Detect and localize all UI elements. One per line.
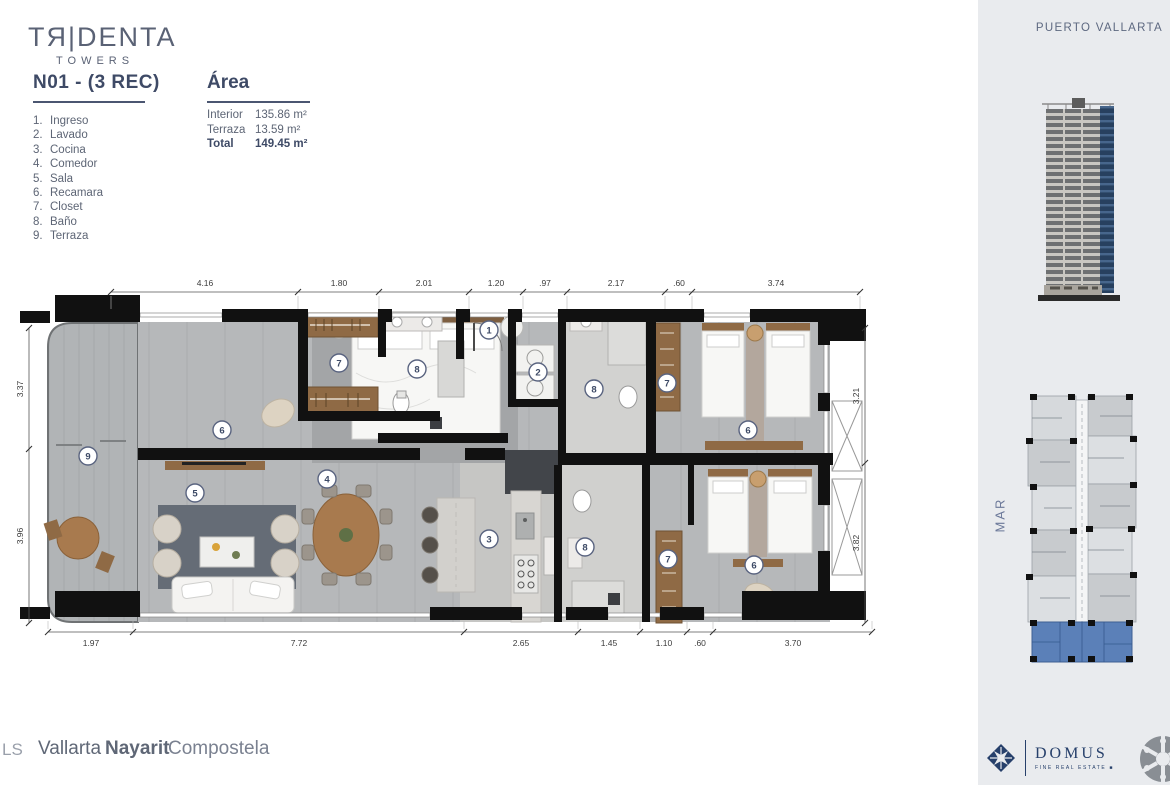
svg-text:.60: .60 bbox=[673, 278, 685, 288]
armchair bbox=[271, 549, 299, 577]
pillow bbox=[774, 481, 806, 493]
dresser bbox=[705, 441, 803, 450]
ground-line bbox=[1038, 295, 1120, 301]
runner-rug bbox=[749, 477, 767, 557]
svg-text:1.20: 1.20 bbox=[488, 278, 505, 288]
armchair bbox=[153, 549, 181, 577]
city-label: PUERTO VALLARTA bbox=[1036, 22, 1163, 34]
legend-item: 1.Ingreso bbox=[33, 114, 103, 128]
room-marker: 8 bbox=[408, 360, 426, 378]
armchair bbox=[271, 515, 299, 543]
tridenta-logo: TЯ|DENTA TOWERS bbox=[28, 22, 177, 67]
svg-text:1.97: 1.97 bbox=[83, 638, 100, 648]
svg-text:2.01: 2.01 bbox=[416, 278, 433, 288]
domus-name: DOMUS bbox=[1035, 745, 1114, 763]
svg-text:2: 2 bbox=[535, 368, 540, 379]
room-marker: 7 bbox=[659, 550, 677, 568]
roof-core bbox=[1072, 98, 1085, 108]
legend-item: 8.Baño bbox=[33, 215, 103, 229]
pillow bbox=[713, 481, 743, 493]
nightstand bbox=[747, 325, 763, 341]
room-marker: 9 bbox=[79, 447, 97, 465]
legend-item: 7.Closet bbox=[33, 200, 103, 214]
terrace-table bbox=[57, 517, 99, 559]
svg-text:7: 7 bbox=[665, 555, 670, 566]
area-row-total: Total149.45 m² bbox=[207, 137, 307, 152]
legend-item: 9.Terraza bbox=[33, 229, 103, 243]
centerpiece-plant bbox=[339, 528, 353, 542]
room-marker: 6 bbox=[739, 421, 757, 439]
area-panel-title: Área bbox=[207, 72, 249, 94]
logo-wordmark: TЯ|DENTA bbox=[28, 22, 177, 53]
room-marker: 7 bbox=[330, 354, 348, 372]
bed-headboard bbox=[708, 469, 748, 477]
svg-text:1.10: 1.10 bbox=[656, 638, 673, 648]
room-marker: 3 bbox=[480, 530, 498, 548]
svg-text:9: 9 bbox=[85, 452, 90, 463]
legend-item: 5.Sala bbox=[33, 172, 103, 186]
svg-text:7: 7 bbox=[336, 359, 341, 370]
unit-title-underline bbox=[33, 101, 145, 103]
keyplan bbox=[1020, 392, 1142, 669]
sink bbox=[392, 317, 402, 327]
partner-wheel-icon bbox=[1132, 733, 1170, 785]
footer-word: Vallarta bbox=[38, 738, 101, 760]
bed-headboard bbox=[702, 323, 744, 331]
right-sidebar: PUERTO VALLARTA bbox=[978, 0, 1170, 785]
area-title-underline bbox=[207, 101, 310, 103]
brochure-page: TЯ|DENTA TOWERS N01 - (3 REC) 1.Ingreso … bbox=[0, 0, 1170, 785]
toilet-tank bbox=[397, 391, 406, 398]
area-row-terraza: Terraza13.59 m² bbox=[207, 123, 307, 138]
svg-text:5: 5 bbox=[192, 489, 198, 500]
tv bbox=[182, 462, 246, 465]
pillow bbox=[707, 335, 739, 347]
svg-text:7.72: 7.72 bbox=[291, 638, 308, 648]
logo-towers-label: TOWERS bbox=[56, 55, 177, 67]
domus-tagline: FINE REAL ESTATE ■ bbox=[1035, 765, 1114, 771]
bar-stool bbox=[422, 537, 438, 553]
svg-text:3.70: 3.70 bbox=[785, 638, 802, 648]
legend-item: 4.Comedor bbox=[33, 157, 103, 171]
table-decor bbox=[212, 543, 220, 551]
domus-divider bbox=[1025, 740, 1026, 776]
room-marker: 8 bbox=[585, 380, 603, 398]
bar-stool bbox=[422, 507, 438, 523]
room-marker: 2 bbox=[529, 363, 547, 381]
svg-text:3.74: 3.74 bbox=[768, 278, 785, 288]
svg-text:6: 6 bbox=[751, 561, 756, 572]
armchair bbox=[153, 515, 181, 543]
svg-text:7: 7 bbox=[664, 379, 669, 390]
tower-elevation bbox=[1030, 92, 1126, 313]
room-marker: 7 bbox=[658, 374, 676, 392]
svg-text:1.80: 1.80 bbox=[331, 278, 348, 288]
toilet bbox=[573, 490, 591, 512]
svg-text:1: 1 bbox=[486, 326, 492, 337]
svg-text:6: 6 bbox=[745, 426, 750, 437]
room-legend: 1.Ingreso 2.Lavado 3.Cocina 4.Comedor 5.… bbox=[33, 114, 103, 244]
footer-word: LS bbox=[2, 740, 23, 760]
footer-word: Nayarit bbox=[105, 738, 169, 760]
pillow bbox=[772, 335, 804, 347]
kitchen-tv-volume bbox=[505, 450, 561, 494]
svg-text:.60: .60 bbox=[694, 638, 706, 648]
svg-text:.97: .97 bbox=[539, 278, 551, 288]
tower-body bbox=[1046, 109, 1100, 293]
nightstand bbox=[750, 471, 766, 487]
tower-blue-edge bbox=[1100, 106, 1114, 293]
floor-plan: 1 2 7 8 8 7 6 6 9 5 4 3 8 7 6 bbox=[0, 255, 950, 685]
room-marker: 8 bbox=[576, 538, 594, 556]
sink bbox=[422, 317, 432, 327]
wardrobe bbox=[302, 387, 378, 413]
svg-text:3.82: 3.82 bbox=[851, 534, 861, 551]
svg-text:8: 8 bbox=[414, 365, 419, 376]
svg-text:2.65: 2.65 bbox=[513, 638, 530, 648]
table-decor bbox=[232, 551, 240, 559]
svg-text:2.17: 2.17 bbox=[608, 278, 625, 288]
legend-item: 6.Recamara bbox=[33, 186, 103, 200]
bed-headboard bbox=[766, 323, 810, 331]
domus-logo: DOMUS FINE REAL ESTATE ■ bbox=[985, 740, 1114, 776]
room-marker: 6 bbox=[213, 421, 231, 439]
room-marker: 6 bbox=[745, 556, 763, 574]
shower-fitting bbox=[608, 593, 620, 605]
mar-label: MAR bbox=[993, 493, 1008, 533]
svg-text:3.37: 3.37 bbox=[15, 380, 25, 397]
svg-text:8: 8 bbox=[591, 385, 596, 396]
legend-item: 3.Cocina bbox=[33, 143, 103, 157]
room-marker: 4 bbox=[318, 470, 336, 488]
svg-text:4.16: 4.16 bbox=[197, 278, 214, 288]
svg-text:1.45: 1.45 bbox=[601, 638, 618, 648]
kitchen-sink bbox=[516, 513, 534, 539]
domus-mark-icon bbox=[985, 742, 1017, 774]
footer-word: Compostela bbox=[168, 738, 269, 760]
bed-headboard bbox=[768, 469, 812, 477]
area-table: Interior135.86 m² Terraza13.59 m² Total1… bbox=[207, 108, 307, 152]
svg-text:3.21: 3.21 bbox=[851, 387, 861, 404]
svg-text:6: 6 bbox=[219, 426, 224, 437]
wardrobe bbox=[654, 323, 680, 411]
area-row-interior: Interior135.86 m² bbox=[207, 108, 307, 123]
room-marker: 1 bbox=[480, 321, 498, 339]
faucet bbox=[523, 518, 527, 522]
coffee-table bbox=[200, 537, 254, 567]
svg-text:3: 3 bbox=[486, 535, 491, 546]
terrace-floor bbox=[48, 323, 138, 622]
svg-text:8: 8 bbox=[582, 543, 587, 554]
svg-text:4: 4 bbox=[324, 475, 330, 486]
svg-text:3.96: 3.96 bbox=[15, 527, 25, 544]
legend-item: 2.Lavado bbox=[33, 128, 103, 142]
room-marker: 5 bbox=[186, 484, 204, 502]
unit-title: N01 - (3 REC) bbox=[33, 72, 160, 94]
bar-stool bbox=[422, 567, 438, 583]
toilet bbox=[619, 386, 637, 408]
footer-locations: LS Vallarta Nayarit Compostela bbox=[0, 733, 330, 773]
